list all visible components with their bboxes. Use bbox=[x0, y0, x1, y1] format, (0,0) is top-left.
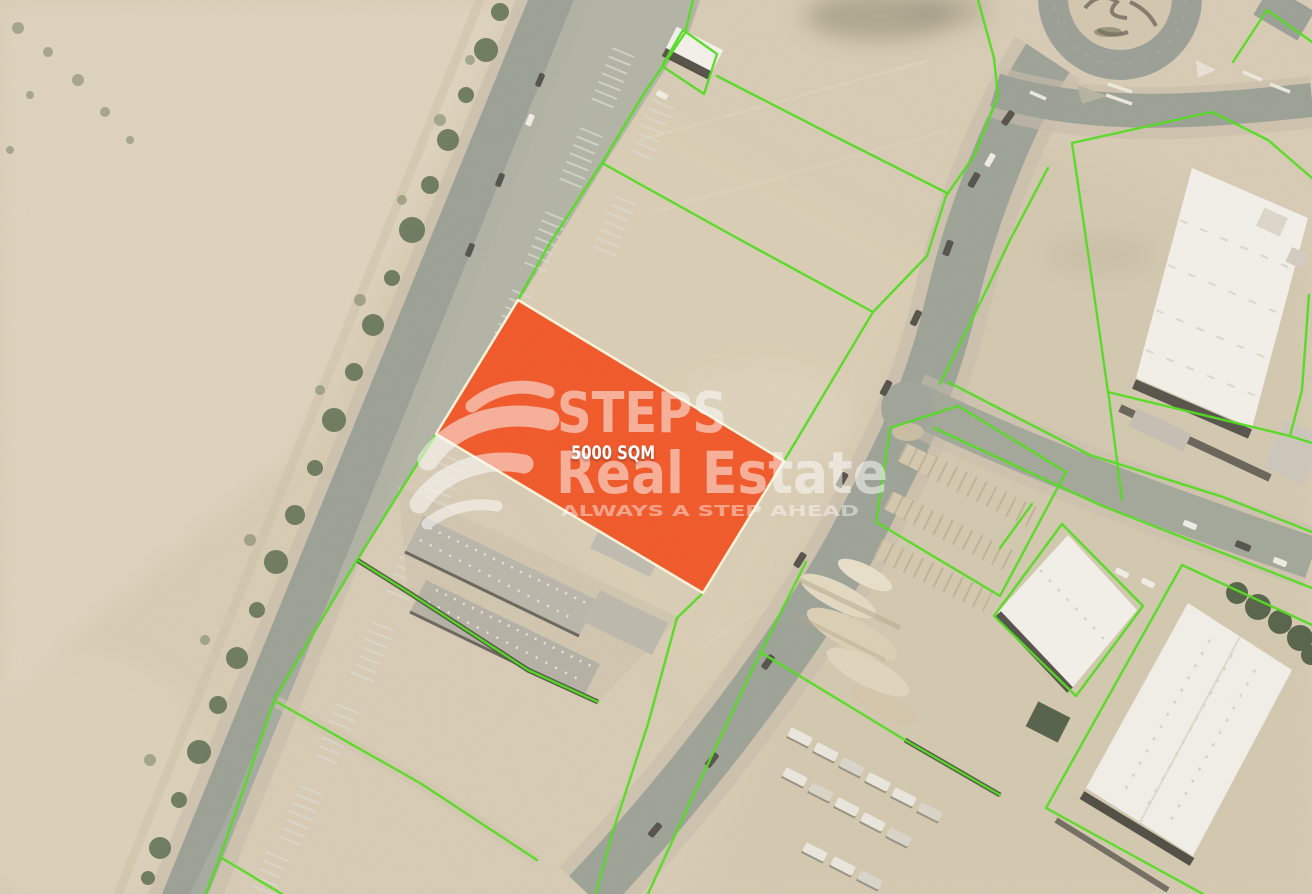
satellite-map-canvas: STEPS Real Estate ALWAYS A STEP AHEAD 50… bbox=[0, 0, 1312, 894]
noise-overlay bbox=[0, 0, 1312, 894]
satellite-map-image: STEPS Real Estate ALWAYS A STEP AHEAD 50… bbox=[0, 0, 1312, 894]
